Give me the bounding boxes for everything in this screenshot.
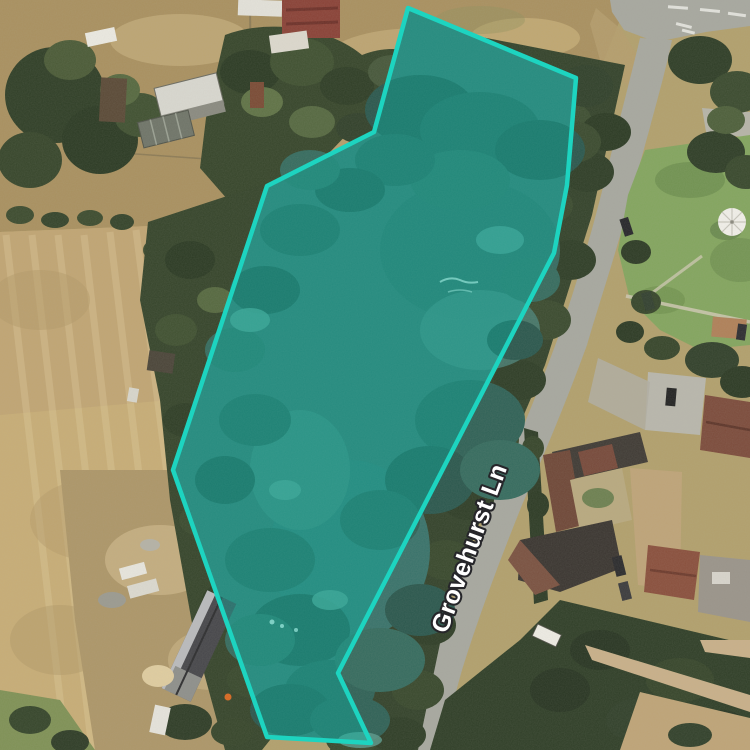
map-canvas[interactable]: Grovehurst Ln (0, 0, 750, 750)
satellite-map-view[interactable]: Grovehurst Ln (0, 0, 750, 750)
